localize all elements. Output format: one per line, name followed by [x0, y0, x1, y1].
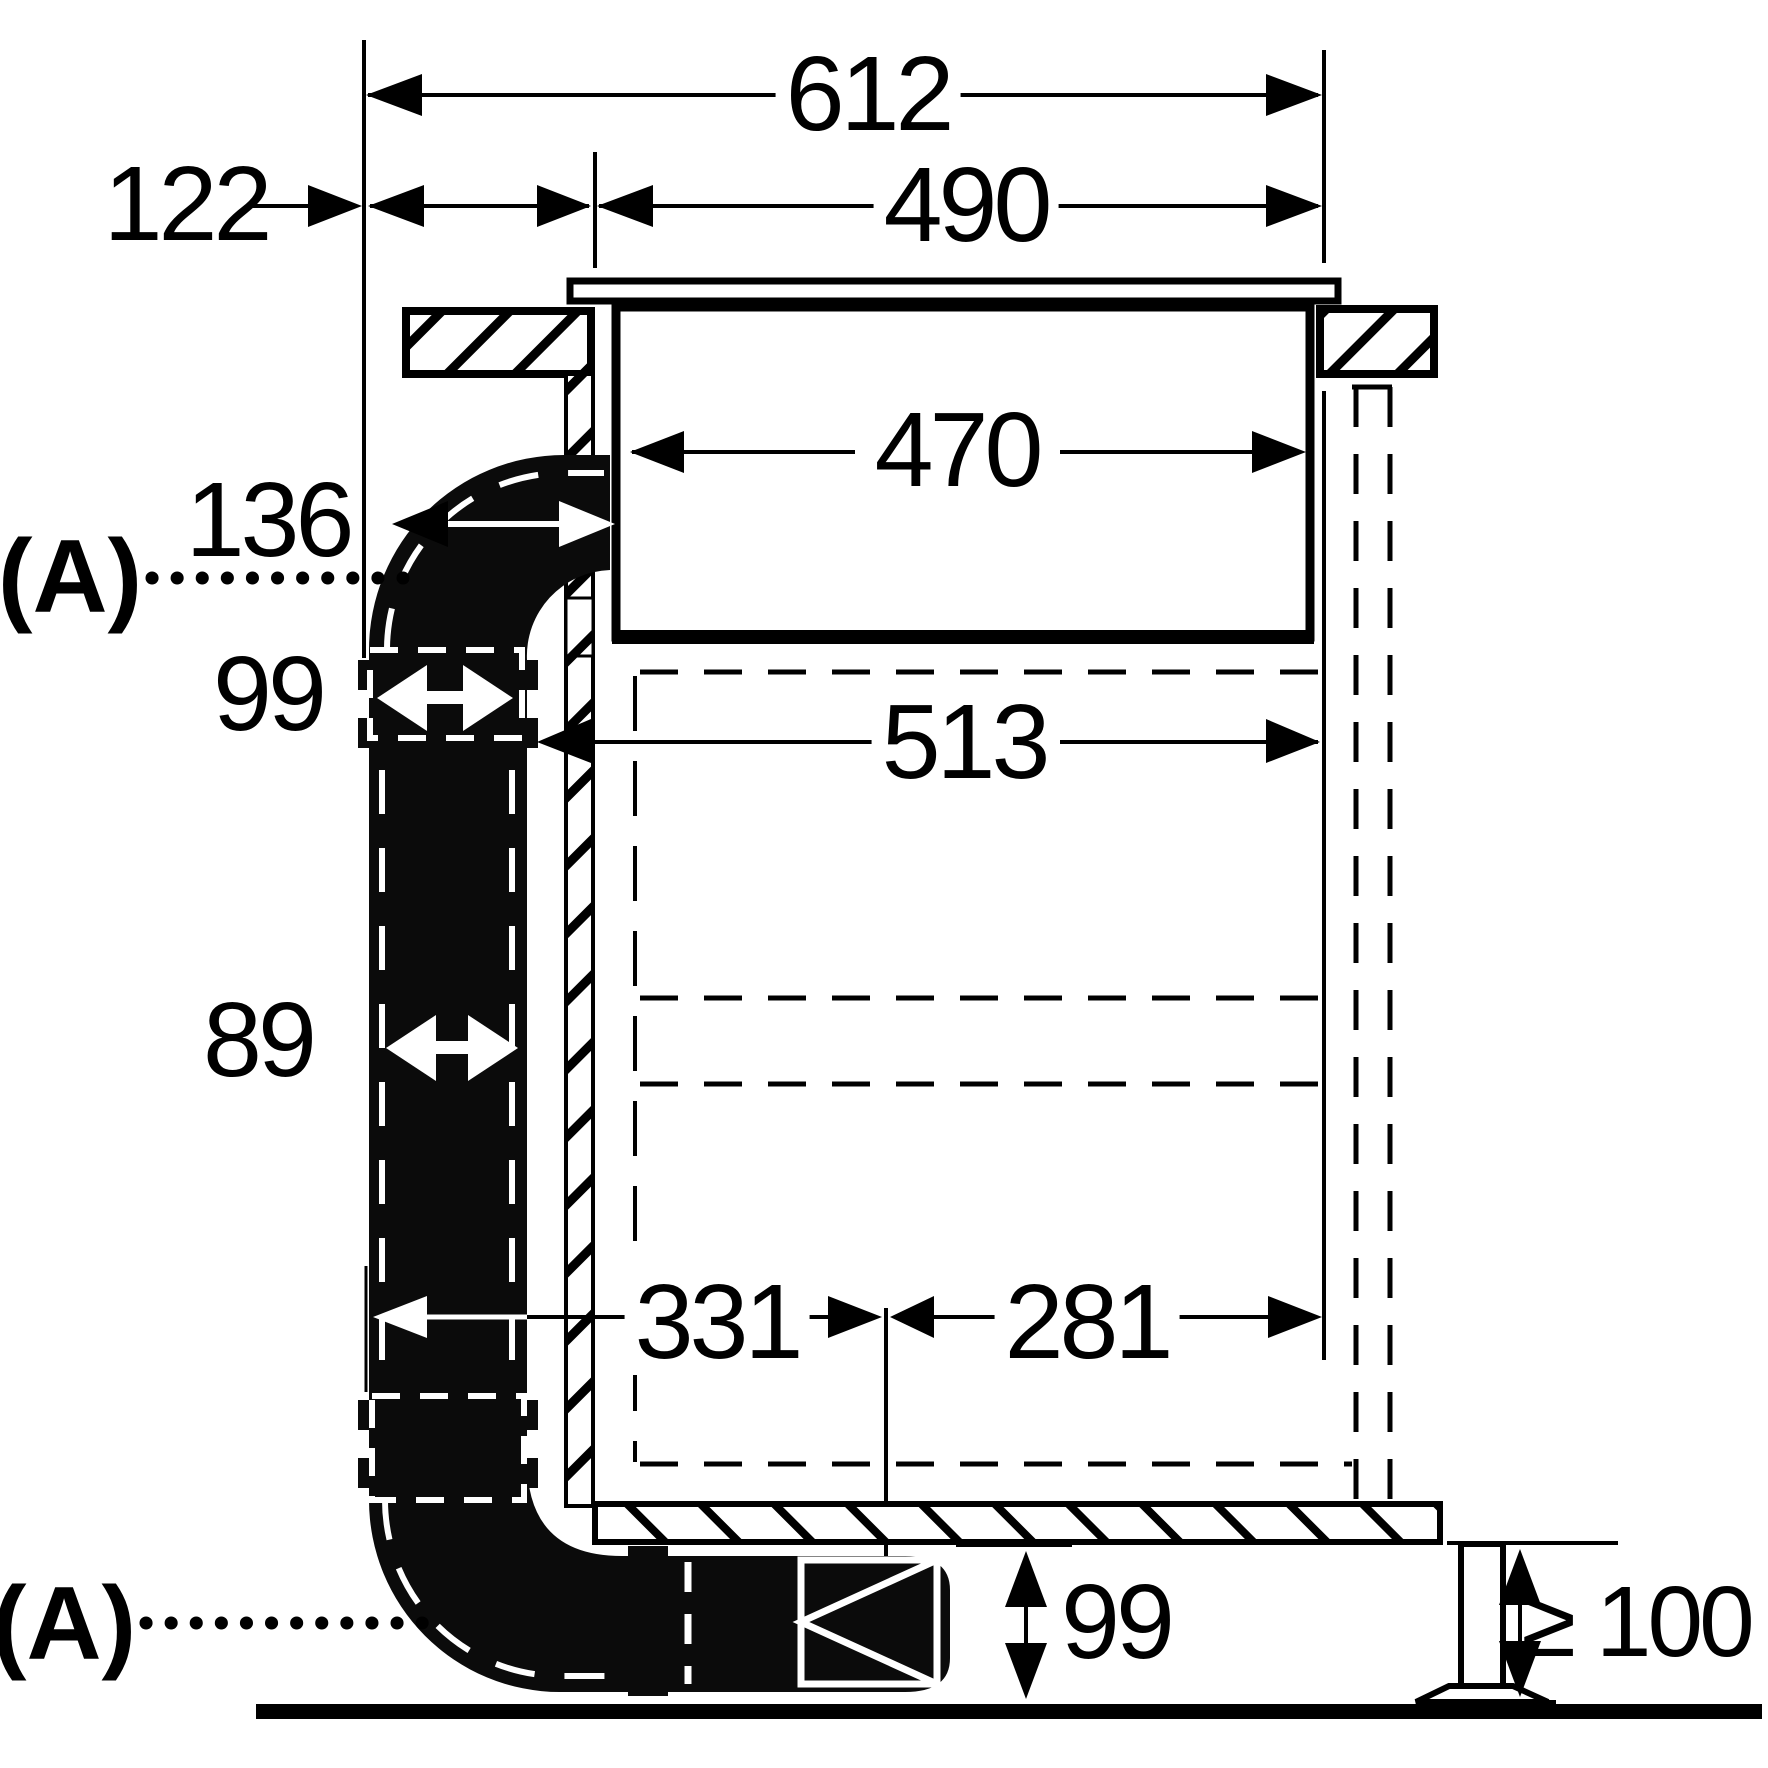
dim-612-label: 612: [776, 41, 961, 147]
hob-glass-top: [570, 281, 1338, 301]
dim-281-label: 281: [995, 1269, 1180, 1375]
dim-99-top-label: 99: [213, 641, 323, 747]
dim-490-label: 490: [874, 152, 1059, 258]
dim-89-label: 89: [203, 987, 313, 1093]
cabinet-bottom-shelf: [595, 1504, 1440, 1542]
channel-clamp: [628, 1546, 668, 1696]
dim-136-label: 136: [186, 467, 351, 573]
floor-line: [256, 1704, 1762, 1719]
dim-min100-label: ≥ 100: [1521, 1572, 1751, 1672]
dim-122-label: 122: [104, 151, 269, 257]
dim-331-label: 331: [625, 1269, 810, 1375]
section-a-top-label: (A): [0, 525, 142, 629]
dim-99-bottom-label: 99: [1061, 1569, 1171, 1675]
installation-dimension-diagram: 612 490 122 470 136 99 513 89 331 281 99…: [0, 0, 1768, 1768]
section-a-bottom-label: (A): [0, 1572, 136, 1676]
dim-513-label: 513: [872, 689, 1057, 795]
diagram-canvas: [0, 0, 1768, 1768]
worktop-left: [406, 311, 591, 374]
worktop-right: [1320, 309, 1434, 374]
dim-470-label: 470: [865, 397, 1050, 503]
